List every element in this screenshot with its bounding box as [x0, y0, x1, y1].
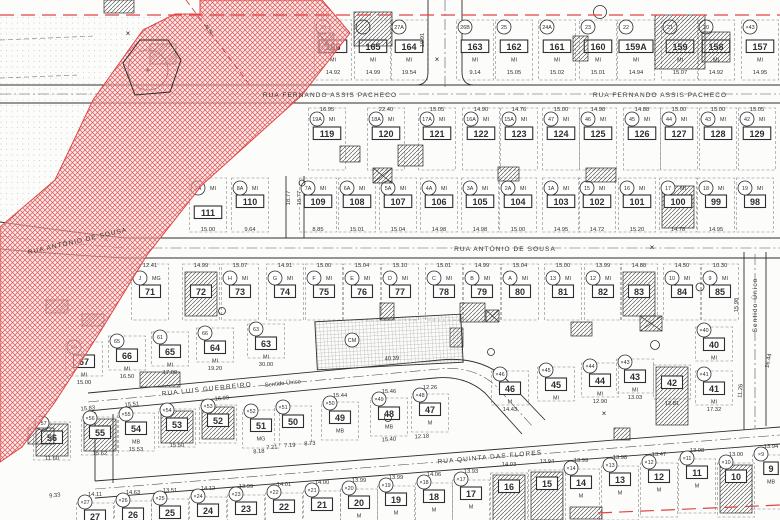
lot-number: 10 — [731, 472, 741, 482]
hatched-structure — [460, 303, 485, 322]
lot-type-tag: MI — [482, 186, 488, 192]
lot-number: 14 — [576, 478, 586, 488]
lot-number: 50 — [288, 417, 298, 427]
lot-id: 42 — [744, 117, 750, 123]
lot-number: 65 — [165, 347, 175, 357]
dimension-label: 12.90 — [593, 399, 608, 405]
dimension-label: 18.77 — [297, 191, 303, 206]
dimension-label: 13.00 — [729, 452, 744, 458]
lot-type-tag: M — [357, 514, 362, 520]
hatched-structure — [586, 168, 616, 182]
dimension-label: 15.00 — [77, 380, 92, 386]
dimension-label: 19.91 — [420, 33, 426, 48]
lot-type-tag: MI — [521, 117, 527, 123]
lot-number: 18 — [429, 492, 439, 502]
lot-number: 160 — [590, 42, 605, 52]
lot-number: 52 — [213, 416, 223, 426]
lot-number: 11 — [692, 468, 702, 478]
lot-number: 101 — [629, 197, 644, 207]
lot-number: 124 — [553, 129, 568, 139]
lot-id: ×56 — [85, 416, 94, 422]
lot-number: 162 — [506, 42, 521, 52]
lot-type-tag: MI — [388, 117, 394, 123]
dimension-label: 14.63 — [126, 490, 141, 496]
lot-id: ×21 — [307, 488, 316, 494]
lot-id: 19 — [742, 186, 748, 192]
dimension-label: 14.91 — [278, 263, 293, 269]
lot-number: 24 — [203, 506, 213, 516]
street-name-label: RUA FERNANDO ASSIS PACHECO — [263, 92, 397, 99]
lot-type-tag: M — [508, 400, 513, 406]
lot-number: 63 — [261, 339, 271, 349]
dimension-label: 14.95 — [554, 227, 569, 233]
dimension-label: 13.94 — [764, 444, 779, 450]
lot-id: D — [388, 276, 392, 282]
street-name-label: RUA ANTÓNIO DE SOUSA — [454, 244, 556, 253]
dimension-label: 16.99 — [214, 395, 229, 402]
dimension-label: 14.99 — [475, 263, 490, 269]
lot-number: 64 — [210, 343, 220, 353]
lot-id: 43 — [705, 117, 711, 123]
lot-id: ×11 — [683, 456, 692, 462]
lot-type-tag: MI — [252, 186, 258, 192]
lot-type-tag: MI — [242, 276, 248, 282]
lot-id: ×26 — [118, 498, 127, 504]
lot-type-tag: MI — [287, 276, 293, 282]
lot-number: 79 — [477, 287, 487, 297]
dimension-label: 15.07 — [673, 70, 688, 76]
lot-id: ×24 — [193, 494, 202, 500]
lot-id: 19A — [312, 117, 322, 123]
lot-number: 20 — [354, 498, 364, 508]
dimension-label: 14.92 — [709, 70, 724, 76]
lot-id: 15A — [504, 117, 514, 123]
lot-id: 44 — [666, 117, 672, 123]
lot-id: 63 — [253, 327, 259, 333]
dimension-label: 15.50 — [170, 443, 185, 449]
lot-type-tag: MI — [370, 58, 376, 64]
lot-id: ×40 — [699, 328, 708, 334]
lot-type-tag: MI — [124, 367, 130, 373]
lot-number: 127 — [671, 129, 686, 139]
lot-type-tag: MI — [402, 276, 408, 282]
dimension-label: 15.02 — [550, 70, 565, 76]
lot-id: E — [350, 276, 354, 282]
dimension-label: 14.12 — [201, 486, 216, 492]
lot-type-tag: M — [394, 511, 399, 517]
dimension-label: 7.19 — [284, 443, 296, 450]
dimension-label: 19.20 — [208, 366, 223, 372]
cadastral-map-svg: 16628MI14.92165MI14.9916427AMI19.5416326… — [0, 0, 780, 520]
lot-type-tag: M — [695, 484, 700, 490]
lot-type-tag: M — [432, 508, 437, 514]
lot-number: 104 — [510, 197, 525, 207]
dimension-label: 12.41 — [143, 263, 158, 269]
lot-number: 120 — [378, 129, 393, 139]
dimension-label: 15.04 — [391, 227, 406, 233]
lot-type-tag: MI — [511, 58, 517, 64]
hatched-structure — [573, 36, 588, 61]
lot-type-tag: MI — [167, 363, 173, 369]
lot-type-tag: MI — [599, 186, 605, 192]
lot-type-tag: MI — [359, 186, 365, 192]
dimension-label: 13.94 — [540, 459, 555, 465]
lot-type-tag: MI — [720, 117, 726, 123]
lot-type-tag: MI — [595, 58, 601, 64]
lot-number: 9 — [768, 464, 773, 474]
lot-type-tag: MI — [553, 396, 559, 402]
lot-type-tag: MB — [767, 480, 775, 486]
lot-number: 128 — [710, 129, 725, 139]
lot-id: ×54 — [162, 408, 171, 414]
lot-type-tag: MI — [605, 276, 611, 282]
dimension-label: 13.03 — [628, 395, 643, 401]
lot-type-tag: MI — [639, 186, 645, 192]
lot-id: 24A — [542, 25, 552, 31]
dimension-label: 14.92 — [326, 70, 341, 76]
survey-x-mark: × — [126, 29, 131, 38]
dimension-label: 8.18 — [253, 449, 265, 456]
lot-type-tag: MI — [484, 276, 490, 282]
dimension-label: 15.62 — [93, 451, 108, 457]
lot-type-tag: MI — [263, 355, 269, 361]
dimension-label: 12.81 — [665, 401, 680, 407]
dimension-label: 13.51 — [163, 488, 178, 494]
cm-id: CM — [348, 338, 357, 344]
lot-type-tag: MI — [600, 117, 606, 123]
lot-number: 19 — [391, 495, 401, 505]
lot-id: 26B — [460, 25, 470, 31]
hatched-structure — [655, 15, 705, 69]
dimension-label: 13.99 — [239, 484, 254, 490]
lot-id: ×10 — [721, 460, 730, 466]
dimension-label: 15.53 — [129, 447, 144, 453]
lot-number: 77 — [395, 287, 405, 297]
lot-id: ×52 — [246, 409, 255, 415]
lot-id: 8A — [237, 186, 244, 192]
lot-id: ×19 — [381, 483, 390, 489]
dimension-label: 15.44 — [333, 393, 348, 399]
lot-number: 12 — [654, 472, 664, 482]
lot-number: 129 — [749, 129, 764, 139]
dimension-label: 9.64 — [244, 227, 256, 233]
lot-number: 66 — [122, 351, 132, 361]
lot-number: 121 — [429, 129, 444, 139]
lot-id: ×43 — [620, 360, 629, 366]
lot-number: 41 — [709, 384, 719, 394]
lot-number: 103 — [553, 197, 568, 207]
lot-type-tag: MI — [644, 117, 650, 123]
dimension-label: 11.26 — [737, 384, 744, 399]
lot-number: 78 — [439, 287, 449, 297]
lot-id: ×27 — [80, 500, 89, 506]
dimension-label: 16.50 — [120, 374, 135, 380]
lot-type-tag: M — [618, 491, 623, 497]
lot-number: 51 — [256, 421, 266, 431]
survey-x-mark: × — [602, 409, 607, 418]
dimension-label: 14.88 — [632, 263, 647, 269]
lot-number: 107 — [390, 197, 405, 207]
lot-id: ×48 — [415, 393, 424, 399]
lot-number: 15 — [542, 479, 552, 489]
dimension-label: 13.98 — [690, 448, 705, 454]
lot-number: 71 — [145, 287, 155, 297]
dimension-label: 13.99 — [596, 263, 611, 269]
lot-type-tag: M — [428, 421, 433, 427]
lot-id: ×9 — [758, 452, 764, 458]
lot-type-tag: MI — [81, 373, 87, 379]
dimension-label: 15.04 — [355, 263, 370, 269]
dimension-label: 9.14 — [469, 70, 481, 76]
dimension-label: 13.99 — [389, 475, 404, 481]
lot-type-tag: M — [579, 494, 584, 500]
hatched-structure — [340, 146, 360, 162]
lot-number: 110 — [243, 197, 258, 207]
lot-id: ×14 — [566, 466, 575, 472]
lot-id: 16A — [466, 117, 476, 123]
lot-type-tag: MI — [522, 276, 528, 282]
lot-id: C — [432, 276, 436, 282]
lot-id: 12 — [590, 276, 596, 282]
lot-number: 53 — [172, 420, 182, 430]
lot-type-tag: MI — [680, 186, 686, 192]
lot-type-tag: MI — [759, 117, 765, 123]
lot-type-tag: MI — [597, 392, 603, 398]
dimension-label: 15.01 — [591, 70, 606, 76]
hatched-structure — [498, 167, 519, 181]
hatched-structure — [354, 12, 392, 46]
lot-number: 42 — [667, 378, 677, 388]
street-name-label: RUA FERNANDO ASSIS PACHECO — [593, 92, 727, 99]
dimension-label: 14.72 — [590, 227, 605, 233]
lot-number: 54 — [131, 424, 141, 434]
dimension-label: 14.50 — [675, 263, 690, 269]
lot-id: ×20 — [344, 486, 353, 492]
dimension-label: 13.98 — [613, 455, 628, 461]
lot-id: ×55 — [121, 412, 130, 418]
lot-type-tag: MI — [565, 276, 571, 282]
dimension-label: 18.77 — [286, 191, 292, 206]
street-name-label: Sentido Único — [750, 278, 759, 333]
lot-number: 105 — [472, 197, 487, 207]
dimension-label: 14.78 — [671, 227, 686, 233]
dimension-label: 19.54 — [402, 70, 417, 76]
survey-x-mark: × — [435, 55, 440, 64]
lot-id: ×12 — [644, 460, 653, 466]
lot-type-tag: MG — [152, 276, 161, 282]
dimension-label: 30.00 — [259, 362, 274, 368]
lot-id: 2A — [505, 186, 512, 192]
lot-id: ×17 — [456, 477, 465, 483]
hatched-structure — [702, 32, 730, 62]
lot-id: 25 — [501, 25, 507, 31]
dimension-label: 15.01 — [350, 227, 365, 233]
dimension-label: 40.39 — [384, 356, 399, 363]
lot-number: 163 — [467, 42, 482, 52]
lot-number: 21 — [317, 500, 327, 510]
lot-id: 7A — [305, 186, 312, 192]
lot-type-tag: MI — [446, 276, 452, 282]
lot-type-tag: MI — [210, 186, 216, 192]
lot-type-tag: MI — [722, 276, 728, 282]
dimension-label: 14.43 — [503, 407, 518, 413]
dimension-label: 11.60 — [45, 456, 59, 462]
hatched-structure — [140, 372, 180, 387]
dimension-label: 15.00 — [711, 107, 726, 113]
lot-number: 25 — [165, 508, 175, 518]
lot-number: 119 — [320, 129, 335, 139]
lot-id: 6A — [344, 186, 351, 192]
lot-id: 1A — [548, 186, 555, 192]
lot-number: 126 — [634, 129, 649, 139]
lot-id: 23 — [585, 25, 591, 31]
dimension-label: 14.11 — [88, 492, 102, 498]
dimension-label: 12.18 — [414, 434, 429, 441]
lot-type-tag: MI — [681, 117, 687, 123]
lot-number: 44 — [595, 376, 605, 386]
lot-type-tag: M — [469, 505, 474, 511]
dimension-label: 14.98 — [591, 107, 606, 113]
lot-id: J — [139, 276, 142, 282]
lot-number: 161 — [549, 42, 564, 52]
lot-type-tag: MI — [329, 117, 335, 123]
lot-type-tag: MI — [441, 186, 447, 192]
lot-id: A — [508, 276, 512, 282]
lot-number: 26 — [128, 510, 138, 520]
lot-number: 22 — [279, 502, 289, 512]
lot-number: 109 — [310, 197, 325, 207]
lot-id: 17A — [422, 117, 432, 123]
lot-number: 47 — [425, 405, 435, 415]
lot-id: 16 — [624, 186, 630, 192]
lot-type-tag: MI — [563, 117, 569, 123]
hatched-structure — [104, 0, 134, 13]
lot-id: 65 — [114, 339, 120, 345]
dimension-label: 17.32 — [707, 407, 722, 413]
lot-number: 100 — [670, 197, 685, 207]
lot-type-tag: MI — [633, 58, 639, 64]
lot-number: 108 — [349, 197, 364, 207]
lot-type-tag: MI — [472, 58, 478, 64]
lot-number: 85 — [715, 287, 725, 297]
dimension-label: 15.05 — [750, 107, 765, 113]
dimension-label: 15.00 — [201, 227, 216, 233]
lot-id: 47 — [548, 117, 554, 123]
dimension-label: 15.98 — [734, 298, 740, 313]
dimension-label: 15.00 — [511, 227, 526, 233]
dimension-label: 15.01 — [437, 263, 452, 269]
dimension-label: 14.00 — [315, 480, 330, 486]
dimension-label: 14.90 — [474, 107, 489, 113]
lot-id: 5A — [385, 186, 392, 192]
lot-number: 27 — [90, 512, 100, 520]
lot-number: 83 — [634, 287, 644, 297]
lot-type-tag: MB — [132, 440, 140, 446]
dimension-label: 14.98 — [473, 227, 488, 233]
dimension-label: 14.99 — [366, 70, 381, 76]
dimension-label: 7.21 — [266, 445, 278, 452]
lot-type-tag: MI — [406, 58, 412, 64]
dimension-label: 15.07 — [233, 263, 248, 269]
dimension-label: 10.30 — [713, 263, 728, 269]
dimension-label: 22.40 — [379, 107, 394, 113]
dimension-label: 14.94 — [629, 70, 644, 76]
dimension-label: 14.98 — [432, 227, 447, 233]
lot-number: 84 — [677, 287, 687, 297]
lot-type-tag: MI — [757, 186, 763, 192]
lot-type-tag: M — [657, 488, 662, 494]
lot-number: 98 — [750, 197, 760, 207]
dimension-label: 14.95 — [753, 70, 768, 76]
lot-id: ×44 — [585, 364, 594, 370]
lot-number: 111 — [201, 208, 215, 218]
lot-id: ×45 — [541, 368, 550, 374]
lot-id: 45 — [629, 117, 635, 123]
lot-id: 13 — [550, 276, 556, 282]
dimension-label: 15.00 — [672, 107, 687, 113]
lot-number: 43 — [630, 372, 640, 382]
lot-number: 76 — [357, 287, 367, 297]
lot-type-tag: MI — [554, 58, 560, 64]
lot-number: 159A — [625, 42, 647, 52]
lot-type-tag: MI — [711, 400, 717, 406]
lot-id: 3A — [467, 186, 474, 192]
lot-number: 55 — [95, 428, 105, 438]
lot-id: 27A — [394, 25, 404, 31]
lot-number: 74 — [280, 287, 290, 297]
lot-id: 46 — [585, 117, 591, 123]
lot-number: 72 — [196, 287, 206, 297]
lot-id: ×23 — [231, 492, 240, 498]
lot-number: 82 — [598, 287, 608, 297]
lot-number: 48 — [384, 409, 394, 419]
lot-id: ×22 — [269, 490, 278, 496]
lot-number: 75 — [319, 287, 329, 297]
dimension-label: 9.33 — [49, 492, 61, 499]
dimension-label: 15.10 — [393, 263, 408, 269]
dimension-label: 15.83 — [80, 405, 95, 412]
hatched-structure — [614, 428, 630, 440]
lot-type-tag: MI — [563, 186, 569, 192]
dimension-label: 15.05 — [430, 107, 445, 113]
dimension-label: 15.51 — [124, 401, 139, 408]
lot-id: B — [470, 276, 474, 282]
dimension-label: 15.00 — [556, 263, 571, 269]
lot-type-tag: MI — [400, 186, 406, 192]
lot-id: ×50 — [325, 401, 334, 407]
lot-type-tag: MI — [483, 117, 489, 123]
lot-type-tag: MB — [385, 425, 393, 431]
dimension-label: 14.95 — [709, 227, 724, 233]
survey-x-mark: × — [650, 243, 655, 252]
lot-type-tag: MI — [632, 388, 638, 394]
lot-number: 17 — [466, 489, 476, 499]
lot-type-tag: MI — [520, 186, 526, 192]
dimension-label: 14.06 — [427, 472, 442, 478]
lot-number: 125 — [590, 129, 605, 139]
lot-id: ×25 — [155, 496, 164, 502]
lot-id: 66 — [202, 331, 208, 337]
lot-number: 49 — [335, 413, 345, 423]
lot-type-tag: MI — [320, 186, 326, 192]
lot-type-tag: MI — [326, 276, 332, 282]
dimension-label: 16.95 — [320, 107, 335, 113]
dimension-label: 14.76 — [512, 107, 527, 113]
lot-number: 164 — [401, 42, 416, 52]
lot-number: 23 — [241, 504, 251, 514]
lot-number: 45 — [551, 380, 561, 390]
dimension-label: 8.73 — [304, 441, 316, 448]
